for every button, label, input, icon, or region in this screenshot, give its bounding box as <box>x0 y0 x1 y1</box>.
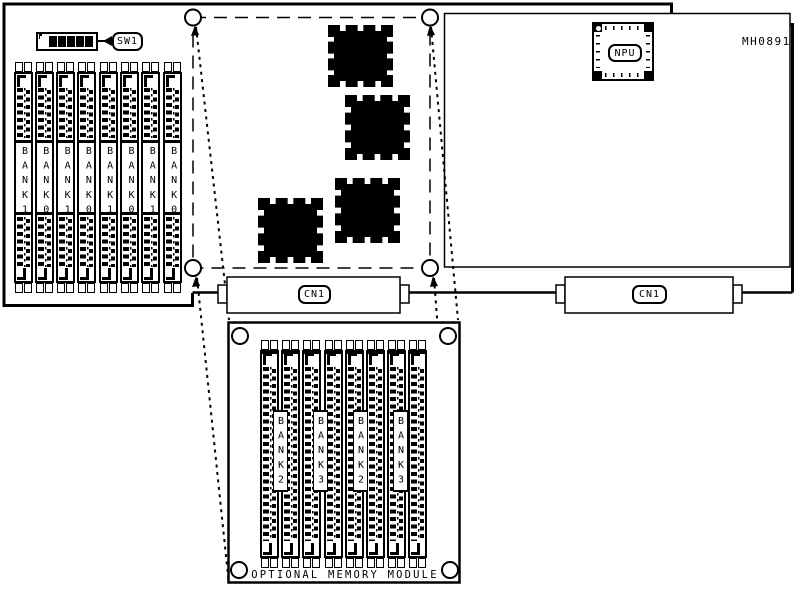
pin-header-square <box>66 62 74 72</box>
slot-pin-rows <box>59 217 72 267</box>
slot-clip-icon <box>38 75 47 87</box>
slot-clip-icon <box>369 353 378 365</box>
part-number: MH0891 <box>742 35 791 48</box>
pin-header-square <box>334 558 342 568</box>
slot-pin-rows <box>80 217 93 267</box>
pin-header-square <box>164 283 172 293</box>
pin-header-square <box>24 62 32 72</box>
npu-corner <box>644 71 652 79</box>
slot-clip-icon <box>17 75 26 87</box>
slot-pin-rows <box>123 88 136 138</box>
pin-header-square <box>45 283 53 293</box>
memory-slot: BANK0 <box>120 62 139 293</box>
slot-clip-icon <box>144 268 153 280</box>
npu-pin1-dot-icon <box>596 26 601 31</box>
pin-header-square <box>261 340 269 350</box>
dip-cell-on <box>49 36 57 47</box>
pin-header-square <box>355 340 363 350</box>
pin-header-square <box>130 283 138 293</box>
slot-pin-rows <box>166 88 179 138</box>
pin-header-square <box>130 62 138 72</box>
sw1-pointer-arrow-icon <box>103 36 112 46</box>
npu-pins-bottom <box>605 73 641 77</box>
memory-slot <box>408 340 427 568</box>
slot-pin-rows <box>38 217 51 267</box>
slot-clip-icon <box>38 268 47 280</box>
qfp-chip <box>258 198 323 263</box>
pin-header-square <box>418 340 426 350</box>
module-bank-label: BANK2 <box>273 410 288 492</box>
pin-header-square <box>303 558 311 568</box>
memory-slot: BANK1 <box>141 62 160 293</box>
memory-board-diagram: SW1 MH0891 NPU CN1 CN1 OPTIONAL MEMORY M… <box>0 0 804 590</box>
cn1-label-right: CN1 <box>632 285 667 304</box>
slot-pin-rows <box>369 367 382 541</box>
pin-header-square <box>409 558 417 568</box>
pin-header-square <box>367 558 375 568</box>
slot-clip-icon <box>17 268 26 280</box>
memory-slot: BANK1 <box>56 62 75 293</box>
pin-header-square <box>376 340 384 350</box>
pin-header-square <box>121 62 129 72</box>
pin-header-square <box>418 558 426 568</box>
pin-header-square <box>388 558 396 568</box>
slot-pin-rows <box>17 217 30 267</box>
pin-header-square <box>355 558 363 568</box>
pin-header-square <box>164 62 172 72</box>
pin-header-square <box>270 558 278 568</box>
memory-slot: BANK1 <box>14 62 33 293</box>
slot-bar <box>368 351 383 354</box>
slot-clip-icon <box>348 353 357 365</box>
pin-header-square <box>87 62 95 72</box>
npu-corner <box>644 24 652 32</box>
pin-header-square <box>303 340 311 350</box>
slot-pin-rows <box>80 88 93 138</box>
slot-clip-icon <box>144 75 153 87</box>
slot-clip-icon <box>59 75 68 87</box>
slot-pin-rows <box>102 88 115 138</box>
pin-header-square <box>78 283 86 293</box>
slot-pin-rows <box>144 217 157 267</box>
memory-slot: BANK1 <box>99 62 118 293</box>
module-bank-label: BANK3 <box>313 410 328 492</box>
slot-clip-icon <box>80 268 89 280</box>
npu-pins-right <box>646 35 650 68</box>
slot-pin-rows <box>123 217 136 267</box>
pin-header-square <box>409 340 417 350</box>
module-bank-label: BANK2 <box>353 410 368 492</box>
dip-cell-off <box>40 36 48 47</box>
slot-clip-icon <box>102 75 111 87</box>
pin-header-square <box>100 62 108 72</box>
slot-clip-icon <box>166 268 175 280</box>
pin-header-square <box>121 283 129 293</box>
slot-clip-icon <box>284 353 293 365</box>
memory-slot: BANK0 <box>77 62 96 293</box>
slot-bar <box>283 351 298 354</box>
slot-pin-rows <box>59 88 72 138</box>
cn1-label-left: CN1 <box>298 285 331 304</box>
slot-clip-icon <box>390 353 399 365</box>
pin-header-square <box>151 283 159 293</box>
slot-clip-icon <box>390 543 399 555</box>
qfp-chip <box>345 95 410 160</box>
pin-header-square <box>312 340 320 350</box>
slot-pin-rows <box>166 217 179 267</box>
npu-label: NPU <box>608 44 642 62</box>
npu-corner <box>594 71 602 79</box>
bank-label: BANK0 <box>121 140 138 215</box>
slot-clip-icon <box>305 543 314 555</box>
slot-clip-icon <box>166 75 175 87</box>
slot-pin-rows <box>144 88 157 138</box>
pin-header-square <box>109 283 117 293</box>
dip-cell-on <box>76 36 84 47</box>
pin-header-square <box>334 340 342 350</box>
pin-header-square <box>57 62 65 72</box>
qfp-chip <box>328 25 393 87</box>
pin-header-square <box>325 558 333 568</box>
pin-header-square <box>397 558 405 568</box>
slot-clip-icon <box>102 268 111 280</box>
slot-clip-icon <box>305 353 314 365</box>
pin-header-square <box>346 340 354 350</box>
slot-pin-rows <box>411 367 424 541</box>
dip-switch-cells <box>40 36 93 47</box>
memory-slot <box>366 340 385 568</box>
pin-header-square <box>151 62 159 72</box>
slot-clip-icon <box>327 353 336 365</box>
slot-clip-icon <box>123 75 132 87</box>
dip-cell-on <box>85 36 93 47</box>
bank-label: BANK1 <box>57 140 74 215</box>
dip-cell-on <box>58 36 66 47</box>
slot-clip-icon <box>263 353 272 365</box>
pin-header-square <box>312 558 320 568</box>
npu-chip: NPU <box>592 22 654 81</box>
bank-label: BANK1 <box>142 140 159 215</box>
dip-switch <box>36 32 98 51</box>
slot-clip-icon <box>263 543 272 555</box>
slot-bar <box>262 351 277 354</box>
pin-header-square <box>173 62 181 72</box>
slot-pin-rows <box>17 88 30 138</box>
pin-header-square <box>376 558 384 568</box>
pin-header-square <box>100 283 108 293</box>
slot-pin-rows <box>38 88 51 138</box>
pin-header-square <box>173 283 181 293</box>
memory-slot: BANK0 <box>35 62 54 293</box>
slot-clip-icon <box>411 353 420 365</box>
qfp-chip <box>335 178 400 243</box>
memory-slot: BANK0 <box>163 62 182 293</box>
slot-bar <box>304 351 319 354</box>
slot-clip-icon <box>327 543 336 555</box>
pin-header-square <box>291 558 299 568</box>
pin-header-square <box>36 283 44 293</box>
slot-clip-icon <box>348 543 357 555</box>
pin-header-square <box>66 283 74 293</box>
pin-header-square <box>282 340 290 350</box>
pin-header-square <box>15 62 23 72</box>
slot-clip-icon <box>59 268 68 280</box>
bank-label: BANK0 <box>164 140 181 215</box>
pin-header-square <box>78 62 86 72</box>
module-bank-label: BANK3 <box>393 410 408 492</box>
pin-header-square <box>15 283 23 293</box>
pin-header-square <box>142 62 150 72</box>
dip-cell-on <box>67 36 75 47</box>
bank-label: BANK1 <box>15 140 32 215</box>
slot-clip-icon <box>80 75 89 87</box>
slot-bar <box>389 351 404 354</box>
slot-bar <box>326 351 341 354</box>
pin-header-square <box>325 340 333 350</box>
slot-clip-icon <box>411 543 420 555</box>
slot-bar <box>347 351 362 354</box>
pin-header-square <box>36 62 44 72</box>
bank-label: BANK0 <box>78 140 95 215</box>
npu-pins-left <box>596 35 600 68</box>
slot-pin-rows <box>327 367 340 541</box>
pin-header-square <box>367 340 375 350</box>
pin-header-square <box>109 62 117 72</box>
slot-clip-icon <box>284 543 293 555</box>
pin-header-square <box>291 340 299 350</box>
pin-header-square <box>45 62 53 72</box>
pin-header-square <box>87 283 95 293</box>
pin-header-square <box>270 340 278 350</box>
pin-header-square <box>388 340 396 350</box>
slot-bar <box>410 351 425 354</box>
pin-header-square <box>282 558 290 568</box>
optional-module-title: OPTIONAL MEMORY MODULE <box>251 569 439 581</box>
pin-header-square <box>57 283 65 293</box>
slot-clip-icon <box>123 268 132 280</box>
npu-pins-top <box>605 26 641 30</box>
pin-header-square <box>142 283 150 293</box>
pin-header-square <box>261 558 269 568</box>
bank-label: BANK1 <box>100 140 117 215</box>
sw1-label: SW1 <box>112 32 143 51</box>
pin-header-square <box>346 558 354 568</box>
bank-label: BANK0 <box>36 140 53 215</box>
pin-header-square <box>24 283 32 293</box>
pin-header-square <box>397 340 405 350</box>
slot-clip-icon <box>369 543 378 555</box>
slot-pin-rows <box>102 217 115 267</box>
